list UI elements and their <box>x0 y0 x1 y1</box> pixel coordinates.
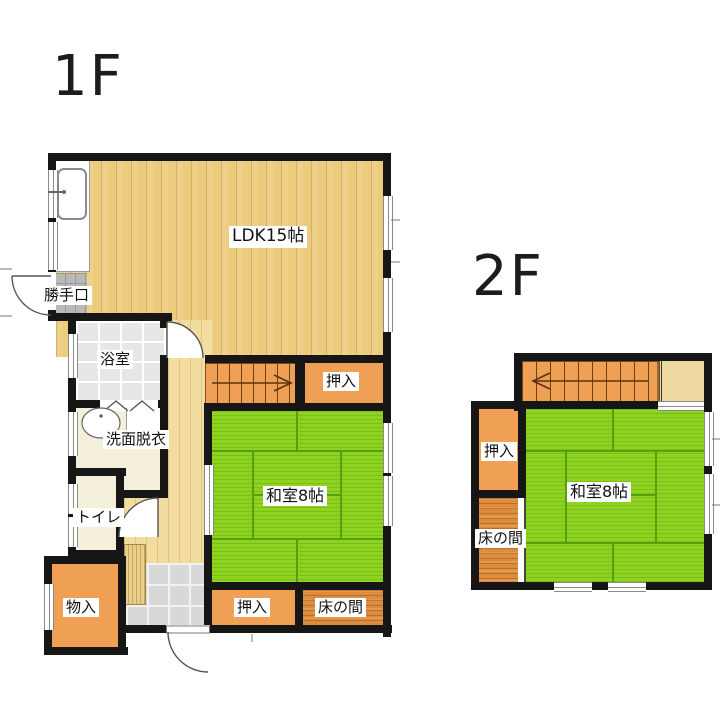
floor-plan-canvas: 1F 2F LDK15帖 勝手口 浴室 洗面脱衣 トイレ 物入 押入 和室8帖 … <box>0 0 720 720</box>
faucet-icon <box>48 190 66 194</box>
label-washroom: 洗面脱衣 <box>103 430 169 449</box>
folding-door-icon <box>104 401 154 411</box>
label-tokonoma-1f: 床の間 <box>315 598 366 617</box>
label-washitsu-1f: 和室8帖 <box>263 486 327 506</box>
label-washitsu-2f: 和室8帖 <box>567 482 631 502</box>
label-ldk: LDK15帖 <box>229 226 307 248</box>
label-oshiire-1f-top: 押入 <box>323 372 359 391</box>
entrance-door-swing-icon <box>167 626 210 672</box>
label-katteguchi: 勝手口 <box>41 286 92 305</box>
label-tokonoma-2f: 床の間 <box>475 529 526 548</box>
door-swing-icon <box>167 322 203 358</box>
floor1-title: 1F <box>52 44 124 109</box>
label-oshiire-2f: 押入 <box>481 442 517 461</box>
stairs-down-arrow-icon <box>533 373 648 389</box>
label-monoire: 物入 <box>63 598 99 617</box>
stair-landing-divider <box>658 361 662 401</box>
label-toilet: トイレ <box>73 508 124 527</box>
label-oshiire-1f-bottom: 押入 <box>234 598 270 617</box>
stairs-up-arrow-icon <box>212 375 291 391</box>
label-bathroom: 浴室 <box>97 350 133 369</box>
door-swing-icon <box>119 498 158 537</box>
floor2-title: 2F <box>472 244 544 309</box>
